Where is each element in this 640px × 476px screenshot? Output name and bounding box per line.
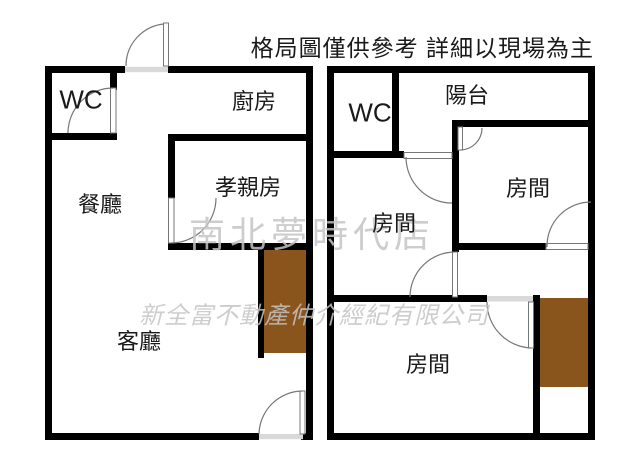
door-arc [461, 128, 483, 150]
watermark-company-name: 新全富不動產仲介經紀有限公司 [139, 296, 489, 331]
door-sill [125, 67, 168, 72]
room-label-room-middle: 房間 [372, 206, 416, 238]
door-leaf [529, 302, 534, 348]
door-sill [259, 434, 303, 439]
wall [45, 66, 52, 440]
wall [45, 433, 259, 440]
door-leaf [453, 252, 458, 297]
wall [45, 133, 117, 140]
door-leaf [458, 127, 463, 150]
room-label-room-top-right: 房間 [506, 171, 550, 203]
wall [168, 134, 175, 198]
door-arc [406, 157, 452, 203]
door-leaf [546, 244, 588, 250]
wall [168, 66, 313, 73]
wall [327, 433, 595, 440]
floorplan-canvas: 南北夢時代店 新全富不動產仲介經紀有限公司 格局圖僅供參考 詳細以現場為主 WC… [0, 0, 640, 476]
room-label-kitchen: 廚房 [232, 84, 276, 116]
wall [327, 151, 404, 158]
door-arc [547, 202, 591, 247]
room-label-balcony: 陽台 [445, 78, 489, 110]
door-sill [487, 296, 533, 302]
room-label-dining: 餐廳 [78, 187, 122, 219]
wall [327, 66, 595, 73]
wall [452, 120, 595, 127]
room-label-right-wc: WC [348, 98, 391, 129]
door-arc [259, 391, 302, 434]
wall [533, 295, 540, 440]
door-leaf [300, 391, 305, 434]
wall [392, 66, 399, 158]
wall [168, 134, 313, 141]
door-leaf [169, 198, 175, 243]
disclaimer-text: 格局圖僅供參考 詳細以現場為主 [251, 29, 594, 63]
door-arc [126, 24, 164, 66]
room-label-parents-room: 孝親房 [215, 170, 281, 202]
door-leaf [111, 88, 117, 133]
door-leaf [404, 153, 452, 159]
room-label-left-wc: WC [59, 85, 102, 116]
wall [110, 66, 117, 90]
room-label-living-room: 客廳 [117, 324, 161, 356]
door-leaf [164, 23, 169, 66]
door-arc [410, 252, 455, 297]
room-label-room-bottom: 房間 [406, 347, 450, 379]
wall [452, 243, 546, 250]
balcony-fill-right [540, 298, 588, 387]
door-arc [487, 302, 531, 348]
